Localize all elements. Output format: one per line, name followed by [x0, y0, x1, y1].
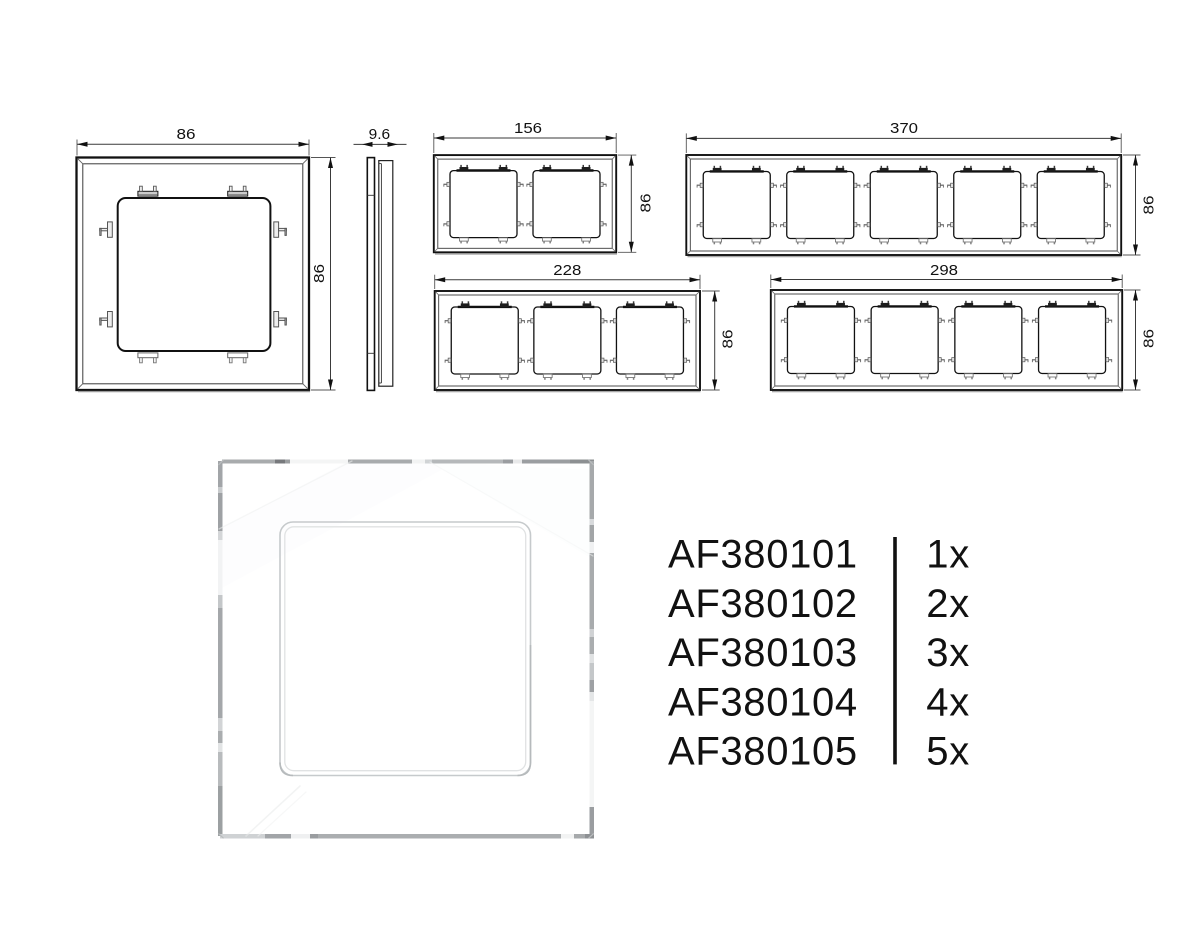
- svg-text:AF380103: AF380103: [668, 631, 858, 675]
- svg-text:AF380105: AF380105: [668, 730, 858, 774]
- svg-text:AF380101: AF380101: [668, 533, 858, 577]
- svg-text:5x: 5x: [926, 730, 970, 774]
- svg-text:228: 228: [553, 262, 581, 279]
- svg-text:370: 370: [890, 120, 918, 137]
- svg-text:3x: 3x: [926, 631, 970, 675]
- svg-text:86: 86: [177, 126, 196, 143]
- svg-text:4x: 4x: [926, 680, 970, 724]
- svg-text:1x: 1x: [926, 533, 970, 577]
- svg-text:156: 156: [514, 120, 542, 137]
- svg-text:86: 86: [1141, 329, 1158, 348]
- svg-text:AF380104: AF380104: [668, 680, 858, 724]
- svg-text:9.6: 9.6: [369, 126, 391, 143]
- svg-text:86: 86: [638, 194, 655, 213]
- svg-text:86: 86: [311, 264, 328, 283]
- svg-text:AF380102: AF380102: [668, 582, 858, 626]
- svg-text:86: 86: [1141, 196, 1158, 215]
- svg-text:86: 86: [720, 330, 737, 349]
- svg-text:2x: 2x: [926, 582, 970, 626]
- svg-text:298: 298: [930, 262, 958, 279]
